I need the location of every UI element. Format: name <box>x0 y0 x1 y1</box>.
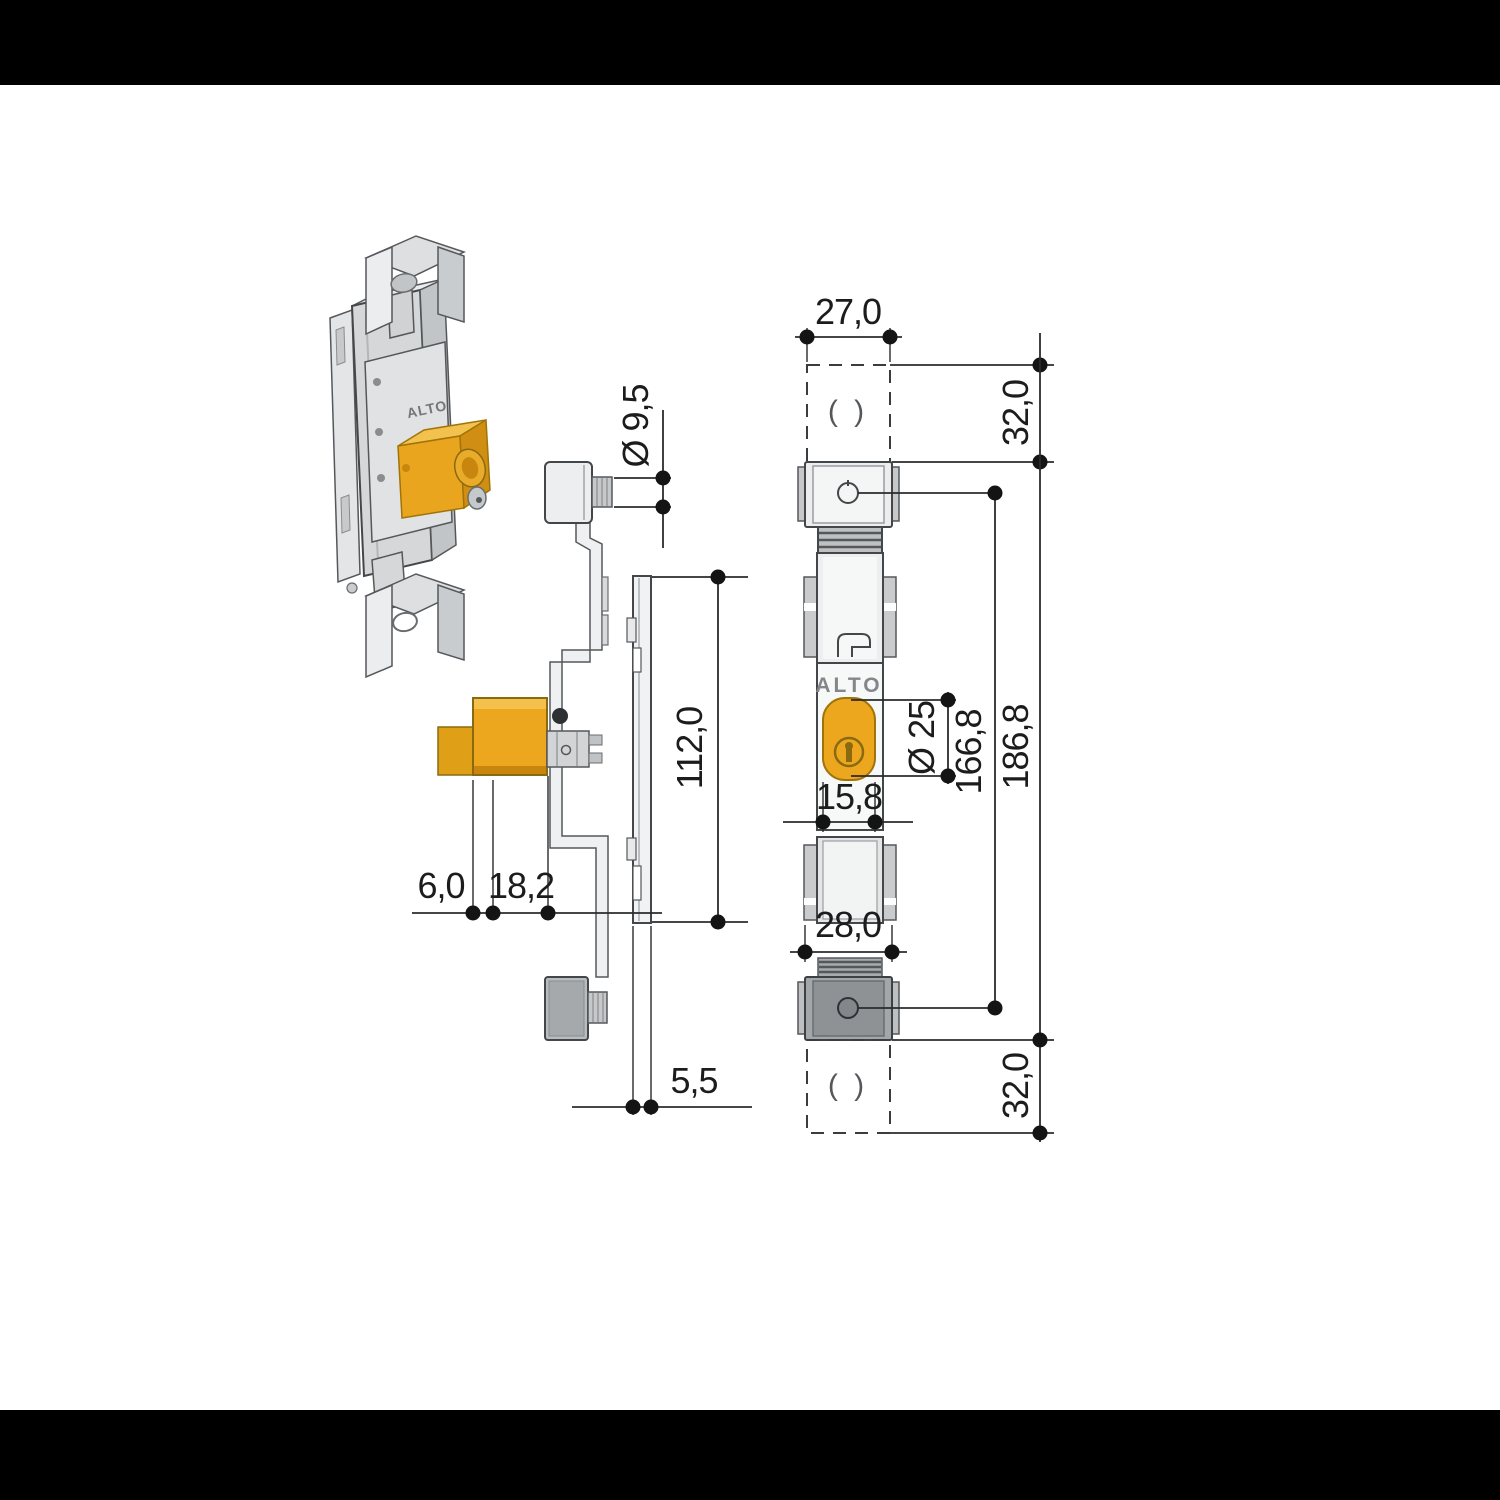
iso-cylinder-front-face <box>398 436 464 518</box>
iso-screw-1 <box>373 378 381 386</box>
dim-cylinder-width-label: 15,8 <box>816 776 882 817</box>
front-top-bracket-inner <box>813 466 884 523</box>
dim-screw-spacing-label: 166,8 <box>948 709 989 794</box>
side-cylinder-shadow <box>474 766 546 774</box>
dim-top-overhang-label: 32,0 <box>995 380 1036 446</box>
dim-bracket-width-label: 27,0 <box>815 291 881 332</box>
dim-offset-large-label: 18,2 <box>488 865 554 906</box>
side-hook-tab-2 <box>602 615 608 645</box>
front-top-bracket <box>798 462 899 527</box>
side-strike-plate-tab-1 <box>627 618 636 642</box>
front-upper-left-wing <box>804 577 817 657</box>
side-bottom-block-inner <box>549 981 584 1036</box>
side-cylinder-body <box>473 698 547 775</box>
iso-back-plate-slot-bottom <box>341 495 350 533</box>
front-lower-right-wing-notch <box>883 898 896 905</box>
technical-drawing-canvas: ALTO <box>0 0 1500 1500</box>
front-lower-right-wing <box>883 845 896 920</box>
iso-screw-3 <box>377 474 385 482</box>
dim-body-width-label: 28,0 <box>815 904 881 945</box>
bottom-letterbox <box>0 1410 1500 1500</box>
iso-screw-2 <box>375 428 383 436</box>
drawing-background <box>0 85 1500 1410</box>
front-brand-label: ALTO <box>815 674 882 697</box>
dim-offset-small-label: 6,0 <box>417 865 464 906</box>
dim-pin-diameter-label: Ø 9,5 <box>615 384 656 467</box>
iso-bottom-bracket-left-flange <box>366 585 392 677</box>
side-strike-plate-notch-1 <box>633 648 641 672</box>
side-strike-plate-notch-2 <box>633 866 641 900</box>
side-latch-block <box>547 731 589 767</box>
front-upper-left-wing-notch <box>804 603 817 611</box>
front-upper-body <box>804 553 896 663</box>
front-spring-band-bottom <box>818 958 882 977</box>
side-latch-tab-1 <box>589 735 602 745</box>
iso-bottom-pin <box>347 583 357 593</box>
dim-bottom-overhang-label: 32,0 <box>995 1053 1036 1119</box>
front-spring-band-top <box>818 527 882 553</box>
side-latch-tab-2 <box>589 753 602 763</box>
front-travel-box-top-symbol: ( ) <box>828 395 868 428</box>
front-bottom-screw-hole <box>838 998 858 1018</box>
dim-strike-plate-height-label: 112,0 <box>669 707 710 789</box>
iso-top-bracket-left-flange <box>366 247 392 334</box>
iso-bottom-bracket-right-flange <box>438 585 464 660</box>
iso-key-pin-tip <box>476 497 482 503</box>
dim-strike-plate-thickness-label: 5,5 <box>670 1060 717 1101</box>
front-travel-box-bottom-symbol: ( ) <box>828 1069 868 1102</box>
side-hook-tab-1 <box>602 577 608 611</box>
front-upper-right-wing-notch <box>883 603 896 611</box>
iso-back-plate-slot-top <box>336 327 345 365</box>
side-cylinder-highlight <box>474 699 546 709</box>
side-cylinder-nose <box>438 727 473 775</box>
top-letterbox <box>0 0 1500 85</box>
side-screw-head <box>552 708 568 724</box>
dim-total-height-label: 186,8 <box>995 704 1036 789</box>
iso-top-bracket-right-flange <box>438 247 464 322</box>
iso-cylinder-front-pin <box>402 464 410 472</box>
front-upper-body-inner <box>823 557 877 659</box>
front-upper-right-wing <box>883 577 896 657</box>
front-keyhole-slot <box>846 748 852 762</box>
dim-cylinder-diameter-label: Ø 25 <box>901 701 942 775</box>
side-strike-plate-tab-2 <box>627 838 636 860</box>
screenshot-root: ALTO <box>0 0 1500 1500</box>
